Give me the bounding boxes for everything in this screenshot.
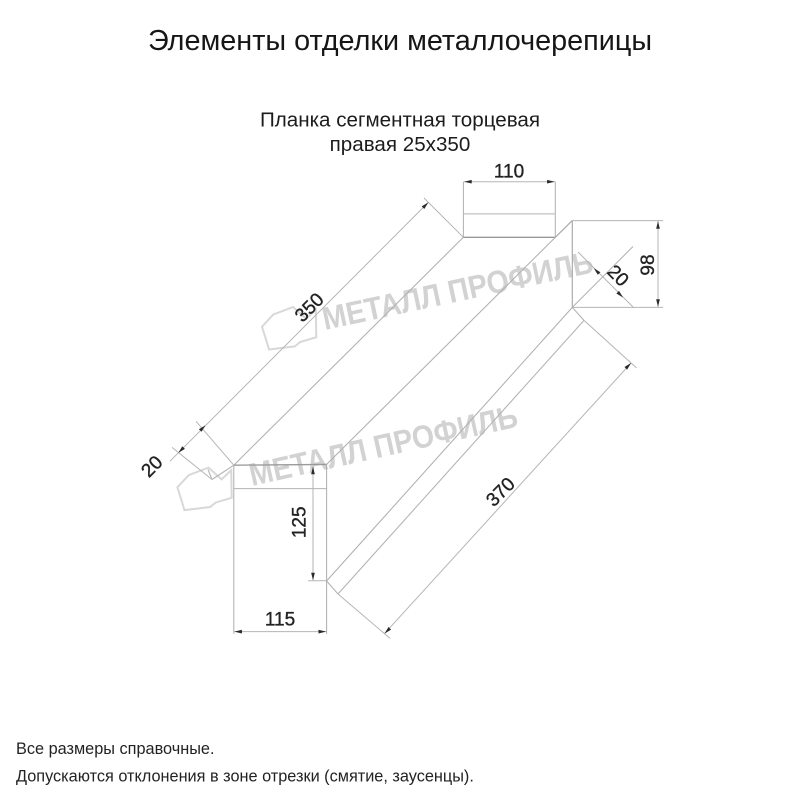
svg-text:115: 115 [265, 610, 295, 631]
svg-text:110: 110 [494, 162, 524, 183]
svg-text:Планка сегментная торцевая: Планка сегментная торцевая [260, 109, 540, 132]
svg-text:Элементы отделки металлочерепи: Элементы отделки металлочерепицы [148, 25, 652, 57]
svg-text:Все размеры справочные.: Все размеры справочные. [16, 740, 214, 758]
svg-text:125: 125 [289, 506, 310, 538]
svg-text:Допускаются отклонения в зоне: Допускаются отклонения в зоне отрезки (с… [16, 768, 474, 786]
svg-text:98: 98 [638, 254, 659, 275]
svg-text:правая 25х350: правая 25х350 [330, 133, 471, 156]
